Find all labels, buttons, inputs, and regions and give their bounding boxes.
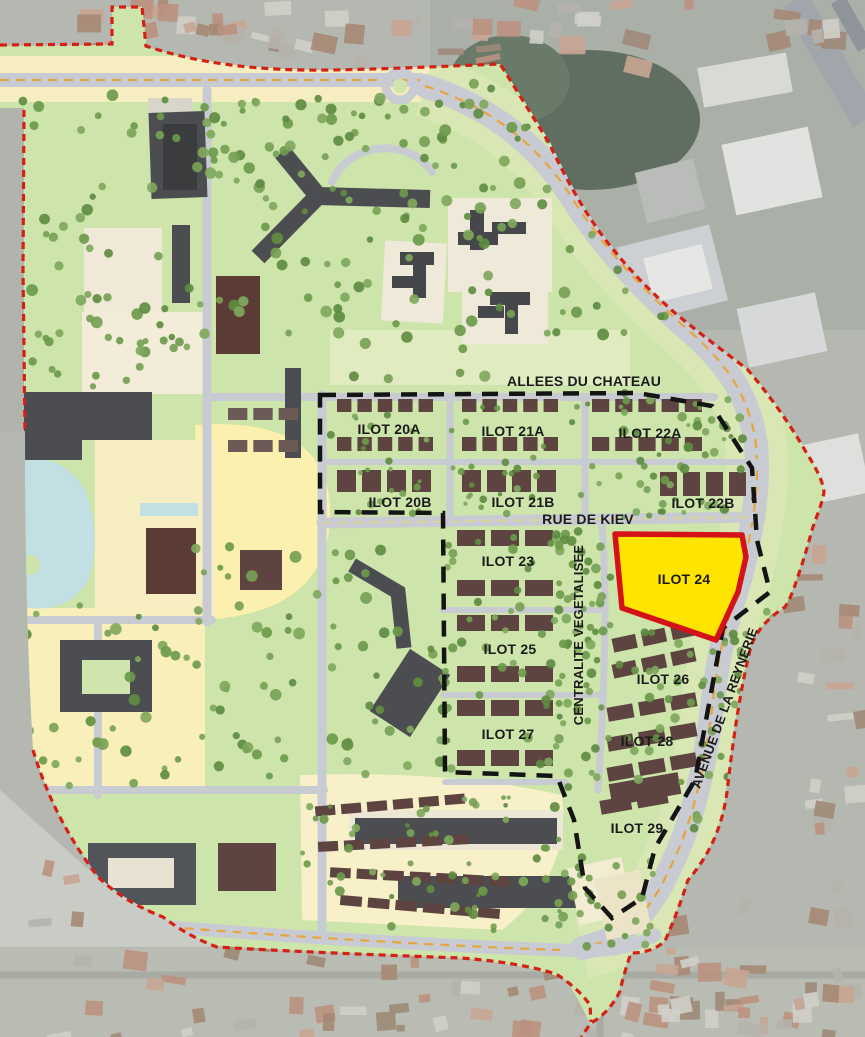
tree xyxy=(547,540,554,547)
tree xyxy=(463,419,469,425)
tree xyxy=(136,614,142,620)
tree xyxy=(594,581,602,589)
masterplan-svg: ALLEES DU CHATEAU ILOT 20A ILOT 21A ILOT… xyxy=(0,0,865,1037)
tree xyxy=(507,310,515,318)
tree xyxy=(670,713,680,723)
tree xyxy=(39,756,47,764)
tree xyxy=(515,136,521,142)
tree xyxy=(199,328,209,338)
tree xyxy=(763,608,771,616)
housing-block xyxy=(378,437,392,451)
tree xyxy=(360,338,371,349)
tree xyxy=(617,890,626,899)
tree xyxy=(90,383,96,389)
housing-block xyxy=(457,700,485,716)
housing-block xyxy=(378,399,392,412)
tree xyxy=(54,370,61,377)
tree xyxy=(445,542,452,549)
tree xyxy=(444,835,454,845)
tree xyxy=(92,372,100,380)
housing-block xyxy=(337,470,356,492)
tree xyxy=(659,500,667,508)
tree xyxy=(19,97,28,106)
satellite-building xyxy=(146,978,165,992)
housing-block xyxy=(340,895,362,907)
tree xyxy=(205,167,216,178)
satellite-building xyxy=(822,984,839,1003)
tree xyxy=(81,204,92,215)
tree xyxy=(328,804,332,808)
tree xyxy=(92,294,101,303)
tree xyxy=(333,577,340,584)
tree xyxy=(615,472,622,479)
housing-row xyxy=(337,399,433,412)
tree xyxy=(483,271,493,281)
tree xyxy=(208,147,218,157)
label-ilot-25: ILOT 25 xyxy=(484,641,537,657)
tree xyxy=(450,902,460,912)
tree xyxy=(270,689,281,700)
tree xyxy=(648,629,655,636)
tree xyxy=(561,870,569,878)
housing-block xyxy=(318,841,338,852)
tree xyxy=(399,139,408,148)
tree xyxy=(578,492,584,498)
satellite-building xyxy=(438,48,464,54)
tree xyxy=(373,672,379,678)
tree xyxy=(266,772,273,779)
tree xyxy=(409,294,419,304)
tree xyxy=(201,569,207,575)
tree xyxy=(502,459,510,467)
tree xyxy=(687,651,694,658)
tree xyxy=(30,121,39,130)
tree xyxy=(252,622,263,633)
tree xyxy=(698,682,706,690)
tree xyxy=(125,671,136,682)
building xyxy=(240,550,282,590)
tree xyxy=(622,933,628,939)
tree xyxy=(191,544,201,554)
tree xyxy=(466,861,471,866)
tree xyxy=(660,508,666,514)
tree xyxy=(384,411,391,418)
water-feature xyxy=(140,503,198,516)
tree xyxy=(353,281,364,292)
tree xyxy=(587,668,597,678)
tree xyxy=(677,412,687,422)
tree xyxy=(228,152,239,163)
tree xyxy=(91,316,103,328)
tree xyxy=(98,183,106,191)
satellite-building xyxy=(412,19,420,26)
tree xyxy=(403,761,412,770)
tree xyxy=(494,405,500,411)
tree xyxy=(26,284,38,296)
tree xyxy=(252,749,262,759)
tree xyxy=(399,189,408,198)
tree xyxy=(302,208,308,214)
tree xyxy=(492,614,498,620)
tree xyxy=(550,802,560,812)
tree xyxy=(376,706,384,714)
tree xyxy=(589,770,595,776)
satellite-building xyxy=(529,30,543,44)
tree xyxy=(680,464,690,474)
satellite-building xyxy=(381,964,397,980)
tree xyxy=(225,573,232,580)
satellite-building xyxy=(844,784,865,803)
tree xyxy=(358,641,368,651)
tree xyxy=(432,162,439,169)
satellite-building xyxy=(559,36,585,54)
satellite-building xyxy=(264,1,291,16)
tree xyxy=(298,170,305,177)
tree xyxy=(327,880,333,886)
tree xyxy=(240,108,246,114)
satellite-building xyxy=(667,948,676,955)
tree xyxy=(469,79,479,89)
tree xyxy=(546,659,556,669)
tree xyxy=(86,244,94,252)
tree xyxy=(499,156,510,167)
tree xyxy=(424,437,430,443)
tree xyxy=(463,230,474,241)
tree xyxy=(55,329,63,337)
housing-block xyxy=(503,437,517,451)
tree xyxy=(715,676,722,683)
tree xyxy=(116,337,123,344)
tree xyxy=(543,844,550,851)
tree xyxy=(136,363,144,371)
tree xyxy=(286,613,293,620)
satellite-building xyxy=(376,1011,396,1031)
tree xyxy=(661,476,670,485)
tree xyxy=(645,693,655,703)
tree xyxy=(559,287,571,299)
tree xyxy=(597,329,609,341)
tree xyxy=(135,656,141,662)
tree xyxy=(724,396,731,403)
satellite-building xyxy=(839,604,860,617)
tree xyxy=(541,444,546,449)
housing-block xyxy=(544,437,558,451)
tree xyxy=(265,142,274,151)
tree xyxy=(175,756,182,763)
tree xyxy=(476,691,484,699)
tree xyxy=(555,921,562,928)
tree xyxy=(490,185,496,191)
tree xyxy=(355,509,361,515)
tree xyxy=(690,824,699,833)
tree xyxy=(619,405,624,410)
housing-block xyxy=(419,399,433,412)
tree xyxy=(285,141,296,152)
housing-block xyxy=(253,440,272,452)
tree xyxy=(255,179,264,188)
tree xyxy=(479,371,490,382)
tree xyxy=(530,455,536,461)
tree xyxy=(243,747,250,754)
tree xyxy=(407,829,415,837)
housing-block xyxy=(462,470,481,492)
tree xyxy=(464,213,471,220)
tree xyxy=(156,321,163,328)
housing-block xyxy=(592,399,609,412)
tree xyxy=(405,823,410,828)
tree xyxy=(33,101,44,112)
tree xyxy=(361,569,370,578)
building xyxy=(218,843,276,891)
label-ilot-22a: ILOT 22A xyxy=(618,425,681,441)
tree xyxy=(485,288,493,296)
tree xyxy=(693,421,703,431)
tree xyxy=(282,115,289,122)
satellite-building xyxy=(71,911,84,927)
label-ilot-21b: ILOT 21B xyxy=(491,494,554,510)
tree xyxy=(260,682,268,690)
tree xyxy=(344,844,353,853)
tree xyxy=(594,902,601,909)
tree xyxy=(349,371,359,381)
tree xyxy=(615,661,623,669)
tree xyxy=(332,549,339,556)
tree xyxy=(235,601,244,610)
tree xyxy=(613,266,622,275)
tree xyxy=(261,222,270,231)
masterplan-map: ALLEES DU CHATEAU ILOT 20A ILOT 21A ILOT… xyxy=(0,0,865,1037)
tree xyxy=(621,409,628,416)
tree xyxy=(427,885,435,893)
tree xyxy=(192,162,202,172)
tree xyxy=(385,114,391,120)
tree xyxy=(407,726,414,733)
housing-block xyxy=(523,437,537,451)
tree xyxy=(510,198,521,209)
tree xyxy=(320,306,332,318)
tree xyxy=(506,122,517,133)
tree xyxy=(557,909,561,913)
tree xyxy=(702,451,709,458)
housing-block xyxy=(370,838,390,849)
tree xyxy=(401,331,412,342)
satellite-building xyxy=(838,614,853,629)
housing-block xyxy=(525,615,553,631)
tree xyxy=(474,598,482,606)
tree xyxy=(269,202,278,211)
housing-block xyxy=(393,798,414,810)
tree xyxy=(586,688,594,696)
tree xyxy=(456,369,465,378)
housing-row xyxy=(457,530,553,546)
tree xyxy=(341,739,353,751)
tree xyxy=(596,542,605,551)
housing-block xyxy=(228,408,247,420)
tree xyxy=(510,660,517,667)
tree xyxy=(372,206,381,215)
tree xyxy=(327,733,338,744)
tree xyxy=(451,163,457,169)
satellite-building xyxy=(684,0,694,10)
label-ilot-21a: ILOT 21A xyxy=(481,423,544,439)
tree xyxy=(313,816,319,822)
tree xyxy=(160,770,170,780)
tree xyxy=(556,837,561,842)
housing-block xyxy=(398,437,412,451)
tree xyxy=(79,234,89,244)
label-ilot-29: ILOT 29 xyxy=(611,820,664,836)
satellite-building xyxy=(846,766,859,779)
tree xyxy=(562,614,572,624)
tree xyxy=(393,626,403,636)
tree xyxy=(343,757,351,765)
housing-block xyxy=(457,750,485,766)
tree xyxy=(722,437,726,441)
tree xyxy=(408,860,414,866)
housing-block xyxy=(729,472,746,496)
tree xyxy=(564,768,573,777)
tree xyxy=(361,770,369,778)
satellite-building xyxy=(123,950,149,972)
housing-block xyxy=(462,399,476,412)
tree xyxy=(475,539,481,545)
tree xyxy=(521,124,529,132)
tree xyxy=(544,757,553,766)
tree xyxy=(582,942,591,951)
satellite-building xyxy=(85,1000,103,1015)
tree xyxy=(537,199,547,209)
tree xyxy=(560,309,566,315)
tree xyxy=(244,162,255,173)
satellite-building xyxy=(323,1013,335,1031)
tree xyxy=(317,113,327,123)
tree xyxy=(330,623,336,629)
tree xyxy=(327,431,335,439)
tree xyxy=(238,100,246,108)
tree xyxy=(407,198,417,208)
tree xyxy=(607,622,614,629)
tree xyxy=(252,98,261,107)
tree xyxy=(514,485,521,492)
tree xyxy=(544,330,551,337)
tree xyxy=(216,297,223,304)
tree xyxy=(300,257,310,267)
tree xyxy=(380,872,385,877)
tree xyxy=(289,679,297,687)
housing-block xyxy=(398,399,412,412)
satellite-building xyxy=(803,992,819,1008)
housing-block xyxy=(228,440,247,452)
satellite-building xyxy=(558,3,580,13)
tree xyxy=(448,549,457,558)
tree xyxy=(597,596,604,603)
tree xyxy=(367,236,373,242)
tree xyxy=(137,340,145,348)
tree xyxy=(246,570,258,582)
tree xyxy=(621,329,628,336)
tree xyxy=(360,592,372,604)
tree xyxy=(622,397,630,405)
tree xyxy=(409,510,416,517)
tree xyxy=(300,851,305,856)
tree xyxy=(509,470,515,476)
tree xyxy=(110,623,122,635)
tree xyxy=(636,480,644,488)
tree xyxy=(77,602,83,608)
tree xyxy=(345,197,352,204)
tree xyxy=(412,877,421,886)
satellite-building xyxy=(833,908,852,929)
tree xyxy=(702,428,710,436)
housing-row xyxy=(462,399,558,412)
housing-block xyxy=(457,530,485,546)
tree xyxy=(466,315,477,326)
satellite-building xyxy=(822,19,840,40)
tree xyxy=(554,899,562,907)
tree xyxy=(589,601,595,607)
housing-block xyxy=(367,897,389,909)
tree xyxy=(51,760,59,768)
housing-block xyxy=(337,399,351,412)
tree xyxy=(634,775,643,784)
tree xyxy=(266,653,273,660)
tree xyxy=(554,734,563,743)
satellite-building xyxy=(419,994,431,1003)
housing-block xyxy=(396,837,416,848)
tree xyxy=(285,627,292,634)
tree xyxy=(559,673,565,679)
tree xyxy=(358,470,363,475)
tree xyxy=(607,574,614,581)
tree xyxy=(605,924,613,932)
tree xyxy=(319,815,328,824)
tree xyxy=(261,627,272,638)
tree xyxy=(195,618,202,625)
satellite-building xyxy=(809,778,821,793)
tree xyxy=(270,248,281,259)
tree xyxy=(468,464,474,470)
tree xyxy=(567,877,575,885)
tree xyxy=(314,95,322,103)
tree xyxy=(650,472,657,479)
tree xyxy=(369,868,376,875)
tree xyxy=(120,745,131,756)
tree xyxy=(687,698,695,706)
tree xyxy=(359,112,366,119)
tree xyxy=(271,232,283,244)
tree xyxy=(574,527,583,536)
housing-block xyxy=(423,902,445,914)
tree xyxy=(392,320,399,327)
housing-block xyxy=(683,472,700,496)
satellite-building xyxy=(785,18,808,35)
tree xyxy=(588,231,596,239)
label-ilot-23: ILOT 23 xyxy=(482,553,535,569)
tree xyxy=(304,294,312,302)
tree xyxy=(340,190,347,197)
tree xyxy=(598,704,604,710)
tree xyxy=(365,702,373,710)
housing-row xyxy=(337,437,433,451)
label-ilot-24: ILOT 24 xyxy=(658,571,711,587)
tree xyxy=(419,224,427,232)
housing-block xyxy=(462,437,476,451)
satellite-building xyxy=(473,19,493,36)
housing-block xyxy=(491,750,519,766)
housing-block xyxy=(395,900,417,912)
tree xyxy=(95,112,102,119)
tree xyxy=(491,872,499,880)
